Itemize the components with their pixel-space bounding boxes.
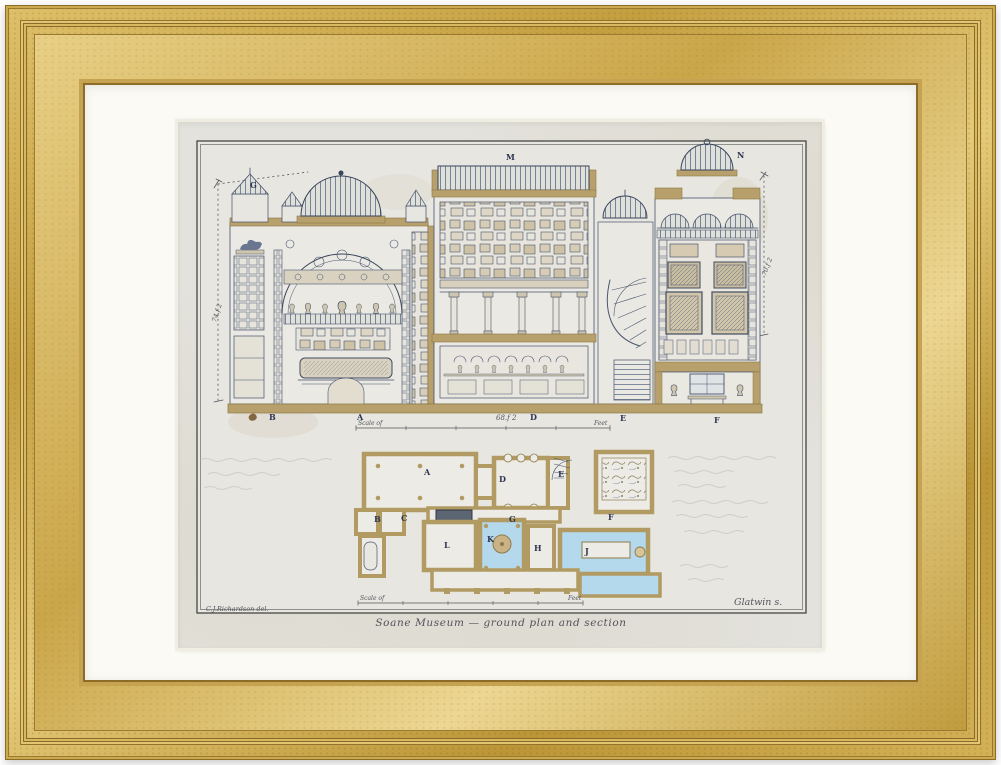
label-section-m: M	[506, 152, 515, 162]
label-section-g: G	[250, 180, 257, 190]
label-plan-l: L	[444, 540, 450, 550]
label-plan-k: K	[487, 534, 495, 544]
balustrade	[284, 314, 402, 324]
lower-parlour	[655, 372, 760, 404]
ground-line	[228, 404, 762, 413]
picture-room-wall	[659, 240, 756, 360]
gallery-rail	[440, 280, 588, 288]
plan-court-extension	[580, 574, 660, 596]
label-base-e: E	[620, 413, 626, 423]
section-middle	[432, 166, 596, 404]
label-base-b: B	[269, 412, 276, 422]
lower-cabinet-room	[440, 346, 588, 398]
scale-top-label: Scale of	[358, 420, 384, 427]
soane-museum-print: 74.f 2 70.f 2	[178, 122, 822, 648]
plan-room-a	[364, 454, 476, 510]
label-plan-a: A	[423, 467, 431, 477]
plan-vestibule	[476, 466, 494, 498]
dentil-cornice	[657, 230, 758, 238]
label-plan-f: F	[608, 512, 614, 522]
label-plan-b: B	[374, 514, 381, 524]
plan-court-j-monument	[582, 542, 630, 558]
credit-draughtsman: C.J.Richardson del.	[206, 605, 269, 613]
label-section-n: N	[737, 150, 744, 160]
scale-bottom-feet: Feet	[567, 595, 582, 602]
scale-bottom-label: Scale of	[360, 595, 386, 602]
label-base-width: 68.f 2	[496, 414, 517, 422]
print-caption: Soane Museum — ground plan and section	[375, 617, 626, 629]
framed-print-photo: 74.f 2 70.f 2	[0, 0, 1001, 765]
arcade-band	[657, 214, 758, 228]
plan-room-l	[424, 522, 476, 570]
skylight	[438, 166, 589, 190]
architectural-drawing: 74.f 2 70.f 2	[178, 122, 822, 648]
relief-covered-wall	[440, 202, 588, 278]
label-plan-g: G	[509, 514, 516, 524]
stair-zone	[598, 190, 653, 404]
plan-bottom-strip	[432, 570, 578, 590]
label-plan-j: J	[584, 546, 589, 556]
label-plan-d: D	[499, 474, 506, 484]
lower-stairs	[614, 360, 650, 400]
plan-room-f-ceiling-pattern	[602, 458, 646, 500]
credit-engraver: Glatwin s.	[734, 597, 782, 608]
label-base-f: F	[714, 415, 720, 425]
label-plan-h: H	[534, 543, 542, 553]
label-plan-e: E	[558, 469, 564, 479]
label-base-d: D	[530, 412, 537, 422]
scale-top-feet: Feet	[593, 420, 608, 427]
label-plan-c: C	[401, 513, 407, 523]
bookcase	[234, 256, 264, 330]
plan-dark-slab	[436, 510, 472, 521]
